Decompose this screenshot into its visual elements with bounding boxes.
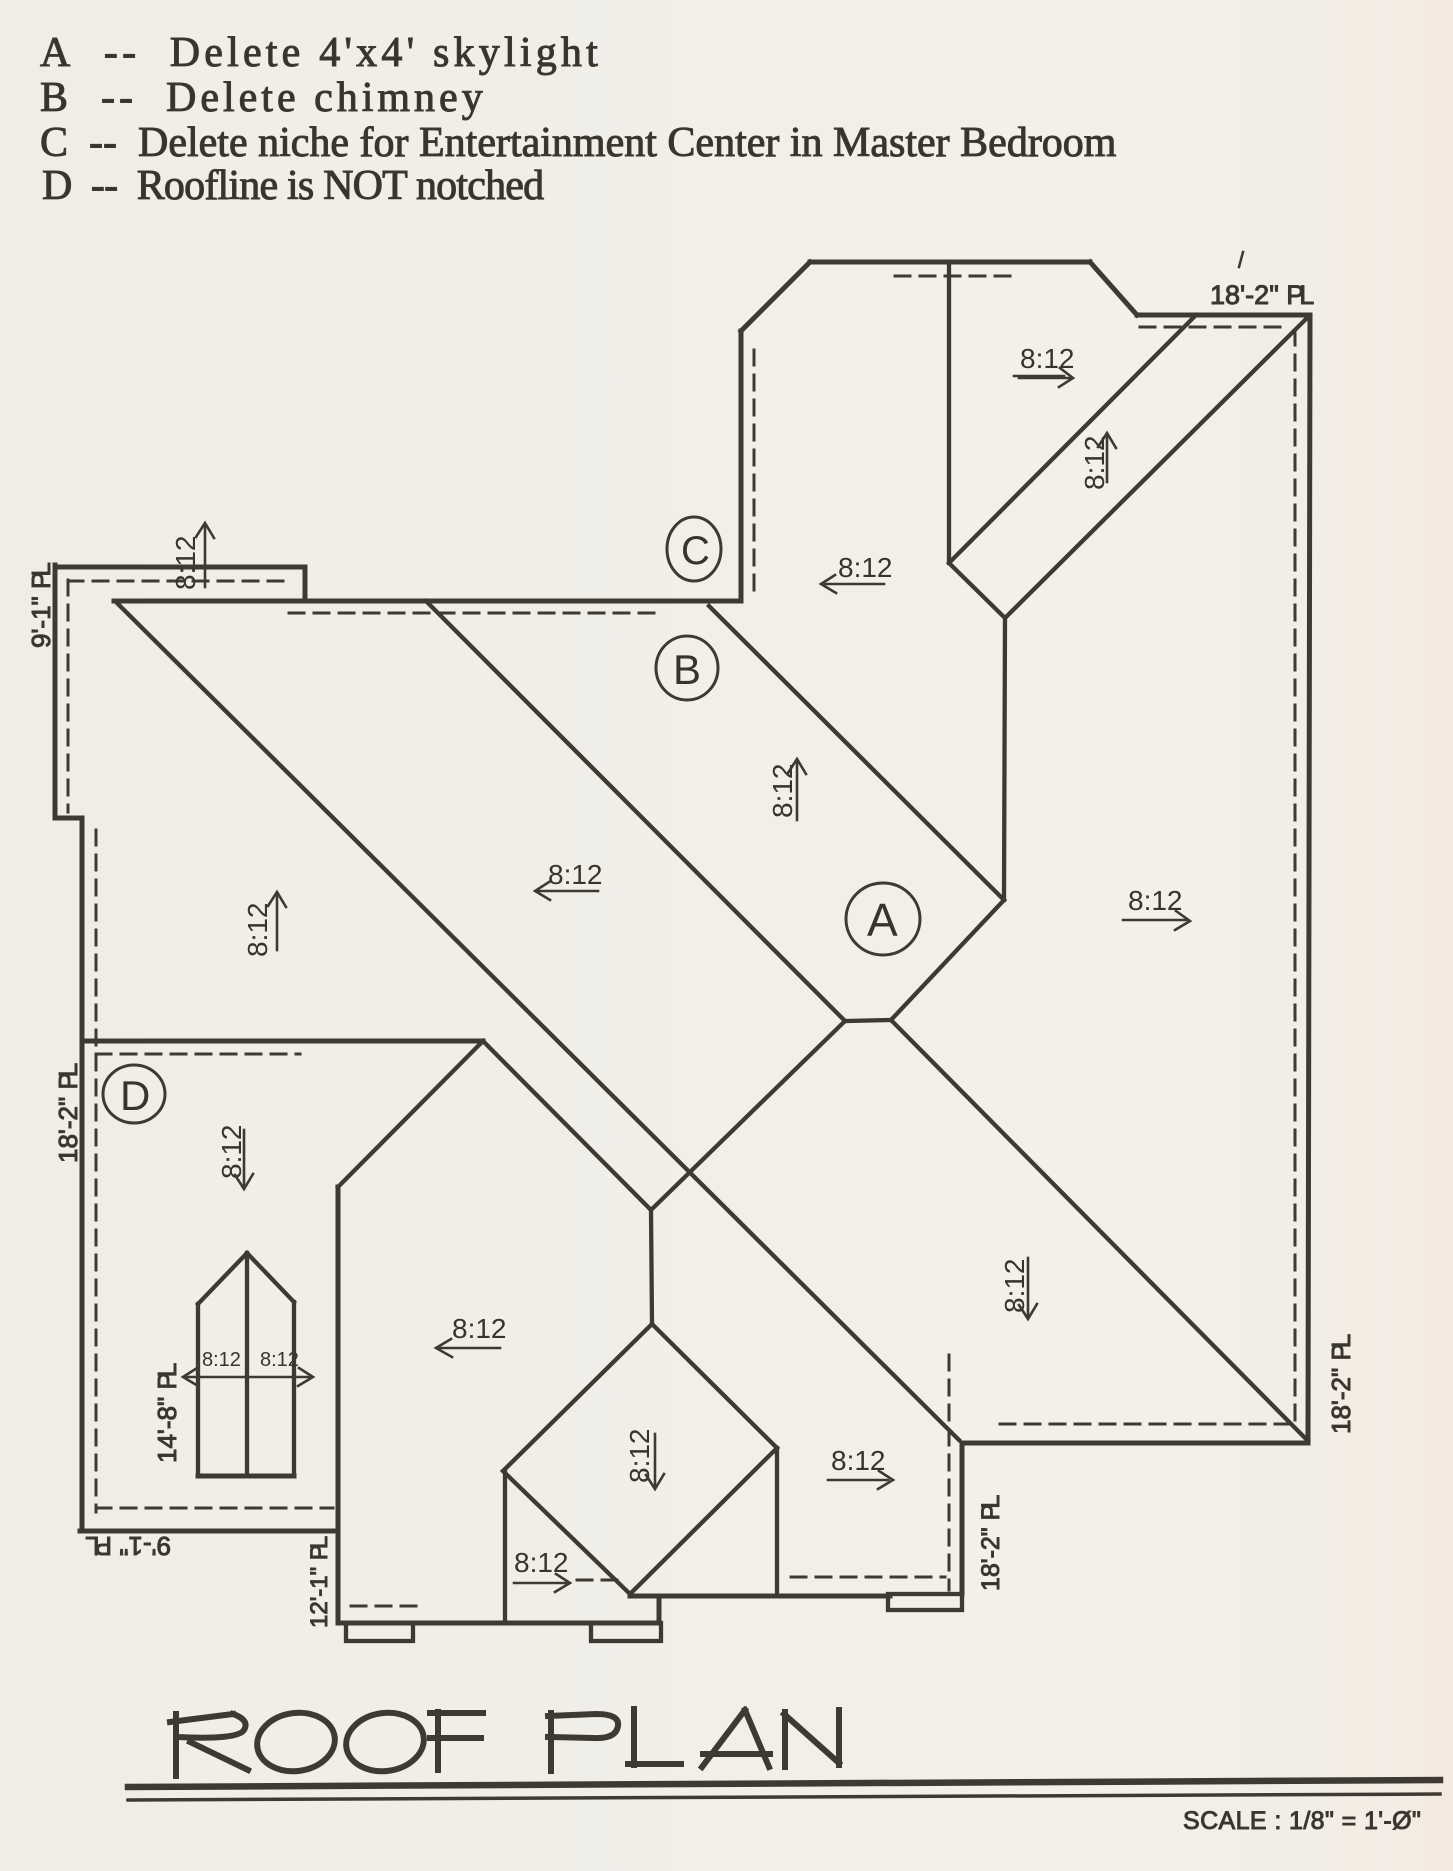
svg-text:C -- Delete niche for Entert: C -- Delete niche for Entertainment Cent…	[40, 120, 1117, 166]
svg-text:14'-8" PL: 14'-8" PL	[152, 1363, 182, 1463]
svg-text:8:12: 8:12	[514, 1547, 569, 1578]
svg-text:9'-1" PL: 9'-1" PL	[85, 1531, 171, 1561]
svg-text:B: B	[673, 646, 701, 693]
svg-text:SCALE : 1/8" = 1'-Ø": SCALE : 1/8" = 1'-Ø"	[1183, 1807, 1421, 1835]
svg-text:18'-2" PL: 18'-2" PL	[977, 1495, 1005, 1591]
svg-text:12'-1" PL: 12'-1" PL	[306, 1536, 333, 1628]
svg-text:D -- Roofline is NOT notched: D -- Roofline is NOT notched	[42, 163, 544, 209]
svg-text:A: A	[867, 894, 898, 946]
svg-text:C: C	[681, 529, 710, 573]
svg-text:A -- Delete 4'x4' skylight: A -- Delete 4'x4' skylight	[40, 30, 602, 76]
svg-text:8:12: 8:12	[242, 903, 273, 958]
svg-text:D: D	[120, 1072, 150, 1119]
svg-text:8:12: 8:12	[624, 1429, 655, 1484]
svg-text:8:12: 8:12	[260, 1349, 299, 1371]
svg-text:B -- Delete chimney: B -- Delete chimney	[40, 75, 487, 121]
svg-text:8:12: 8:12	[999, 1259, 1030, 1314]
svg-text:8:12: 8:12	[767, 764, 798, 819]
svg-text:8:12: 8:12	[1020, 343, 1075, 374]
svg-text:8:12: 8:12	[838, 552, 893, 583]
svg-text:18'-2" PL: 18'-2" PL	[53, 1063, 83, 1163]
svg-text:18'-2" PL: 18'-2" PL	[1326, 1334, 1356, 1434]
svg-text:8:12: 8:12	[216, 1125, 247, 1180]
svg-text:18'-2" PL: 18'-2" PL	[1210, 280, 1314, 310]
svg-text:8:12: 8:12	[202, 1349, 241, 1371]
svg-text:8:12: 8:12	[452, 1313, 507, 1344]
svg-text:8:12: 8:12	[1079, 436, 1110, 491]
svg-text:8:12: 8:12	[170, 536, 201, 591]
svg-text:8:12: 8:12	[548, 859, 603, 890]
svg-text:9'-1" PL: 9'-1" PL	[26, 562, 56, 648]
